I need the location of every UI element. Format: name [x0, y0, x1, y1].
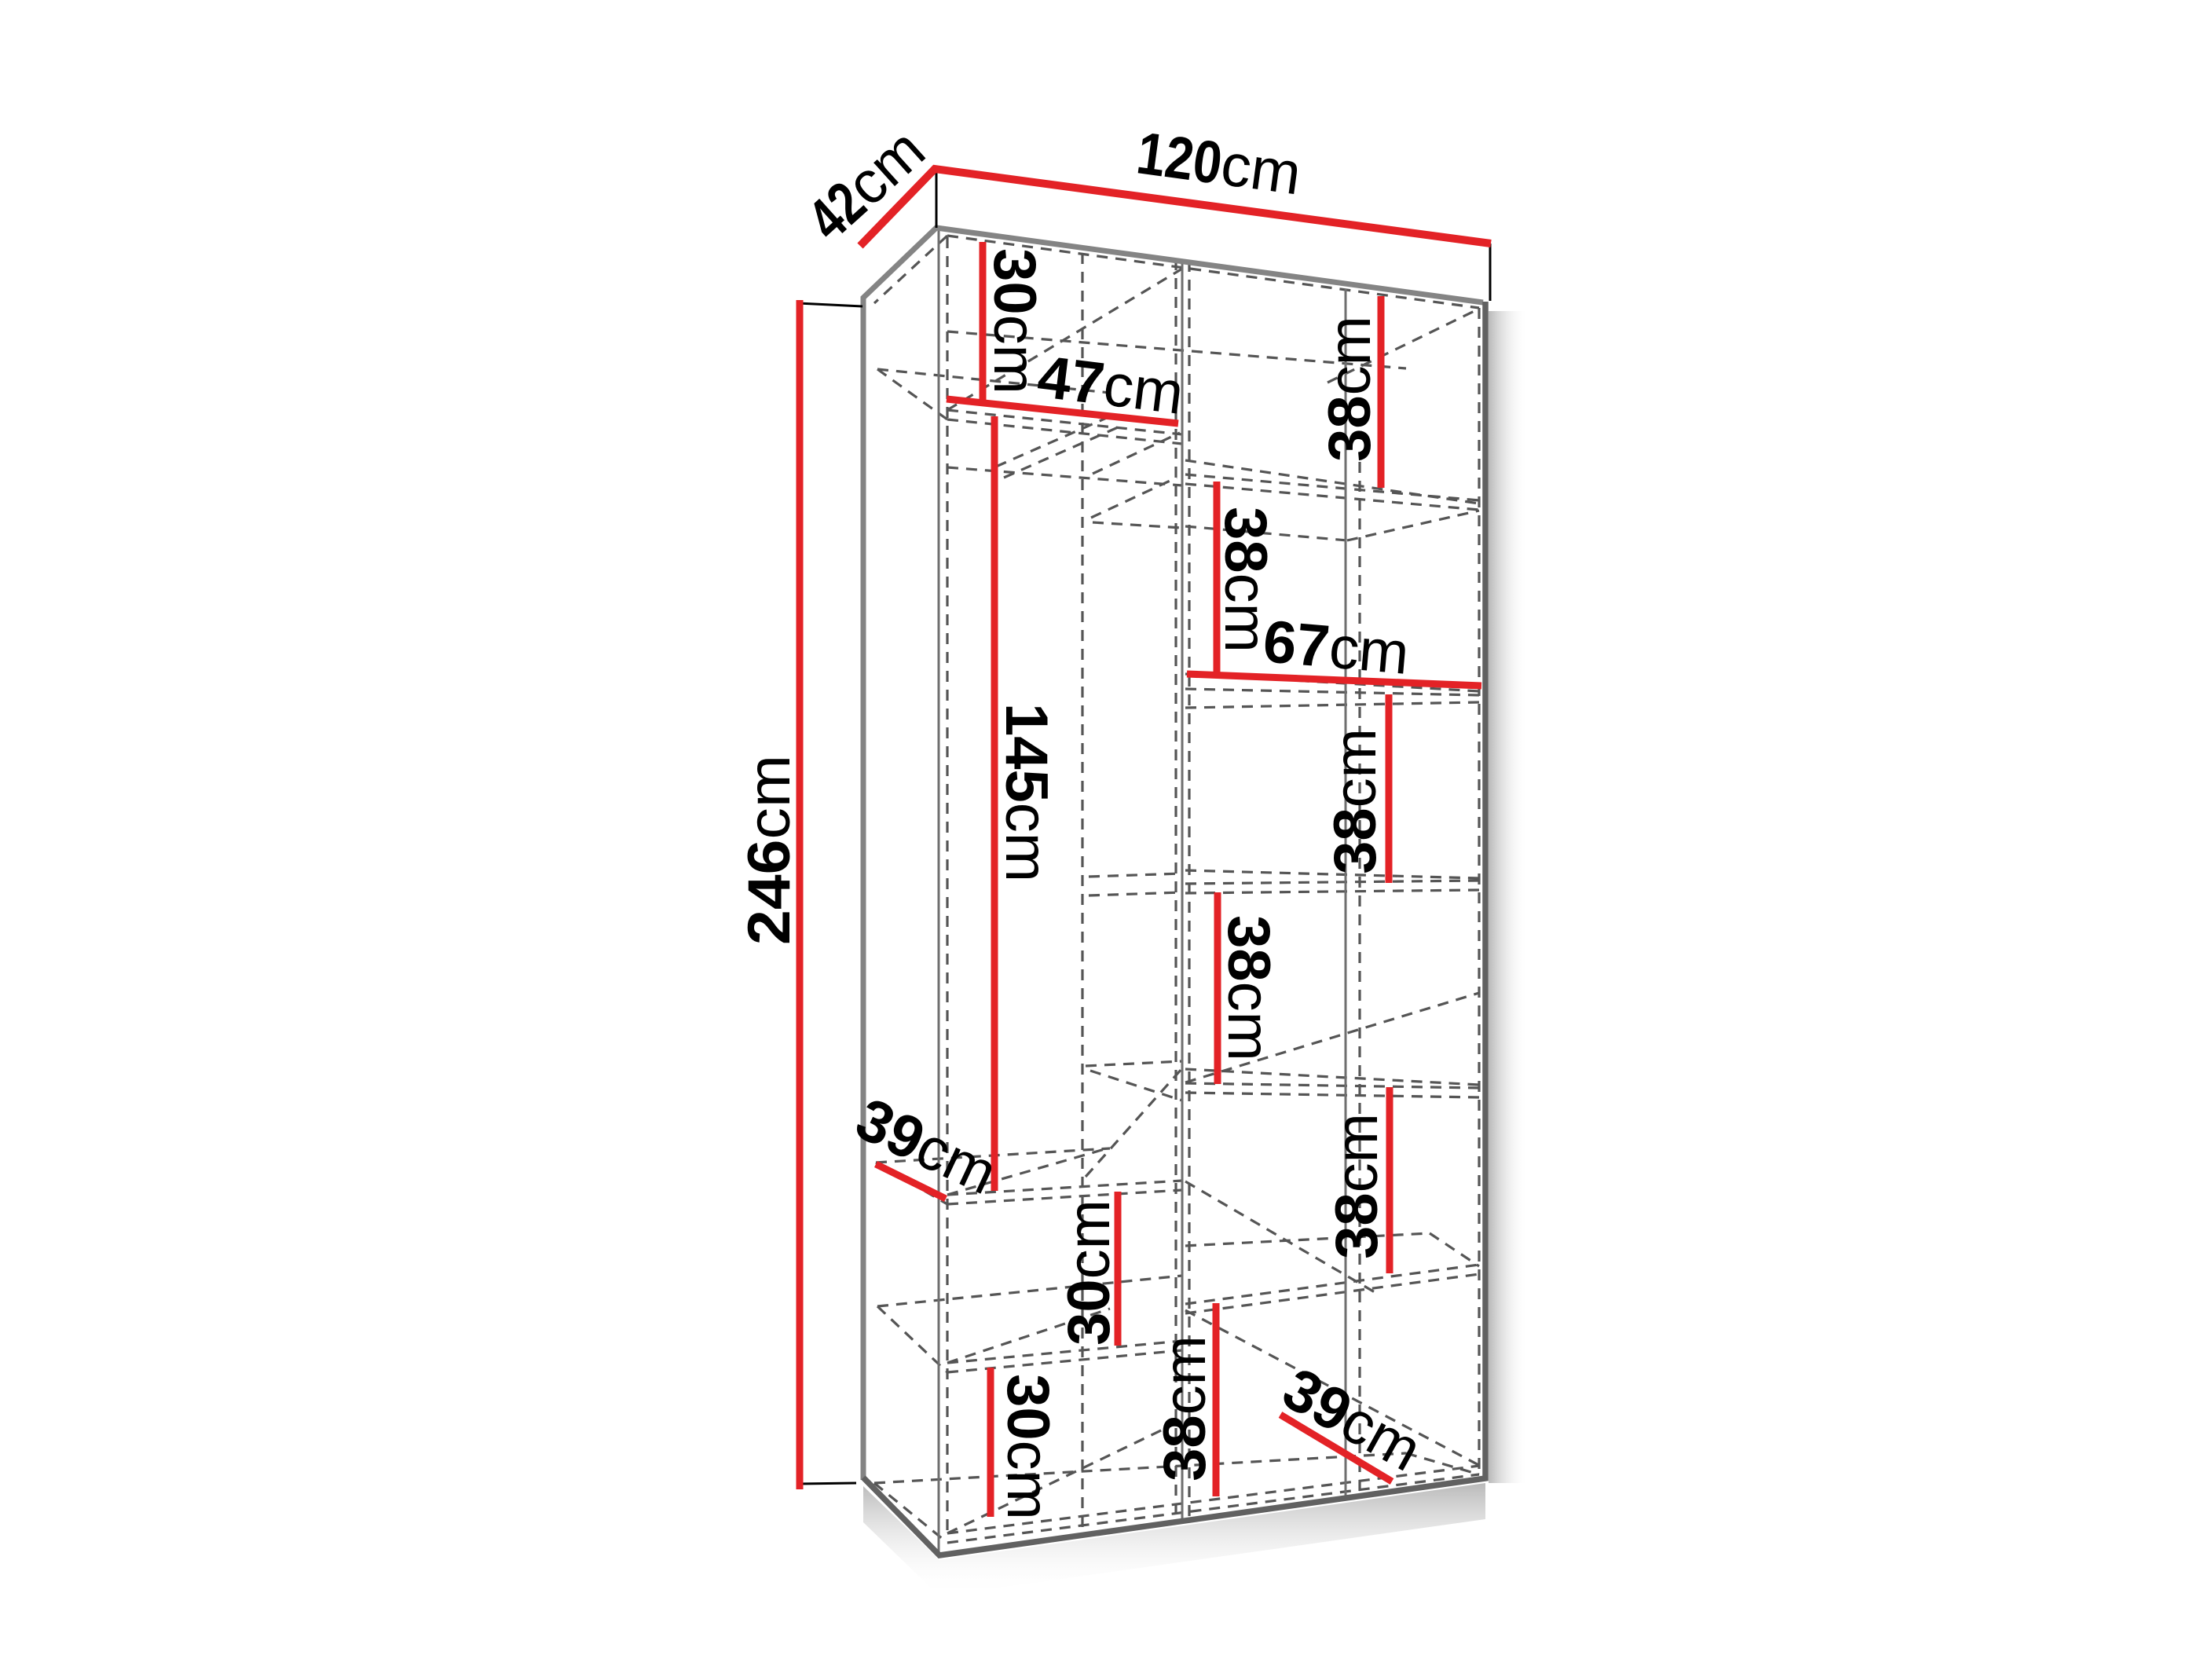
svg-text:38cm: 38cm [1152, 1335, 1218, 1481]
svg-text:38cm: 38cm [1324, 1113, 1390, 1259]
svg-text:246cm: 246cm [736, 755, 803, 945]
svg-text:30cm: 30cm [994, 1374, 1061, 1520]
svg-text:38cm: 38cm [1215, 915, 1282, 1061]
svg-text:38cm: 38cm [1317, 316, 1383, 462]
svg-text:145cm: 145cm [993, 703, 1060, 882]
svg-text:38cm: 38cm [1322, 728, 1389, 874]
svg-text:67cm: 67cm [1261, 608, 1412, 687]
svg-text:30cm: 30cm [1056, 1199, 1122, 1346]
